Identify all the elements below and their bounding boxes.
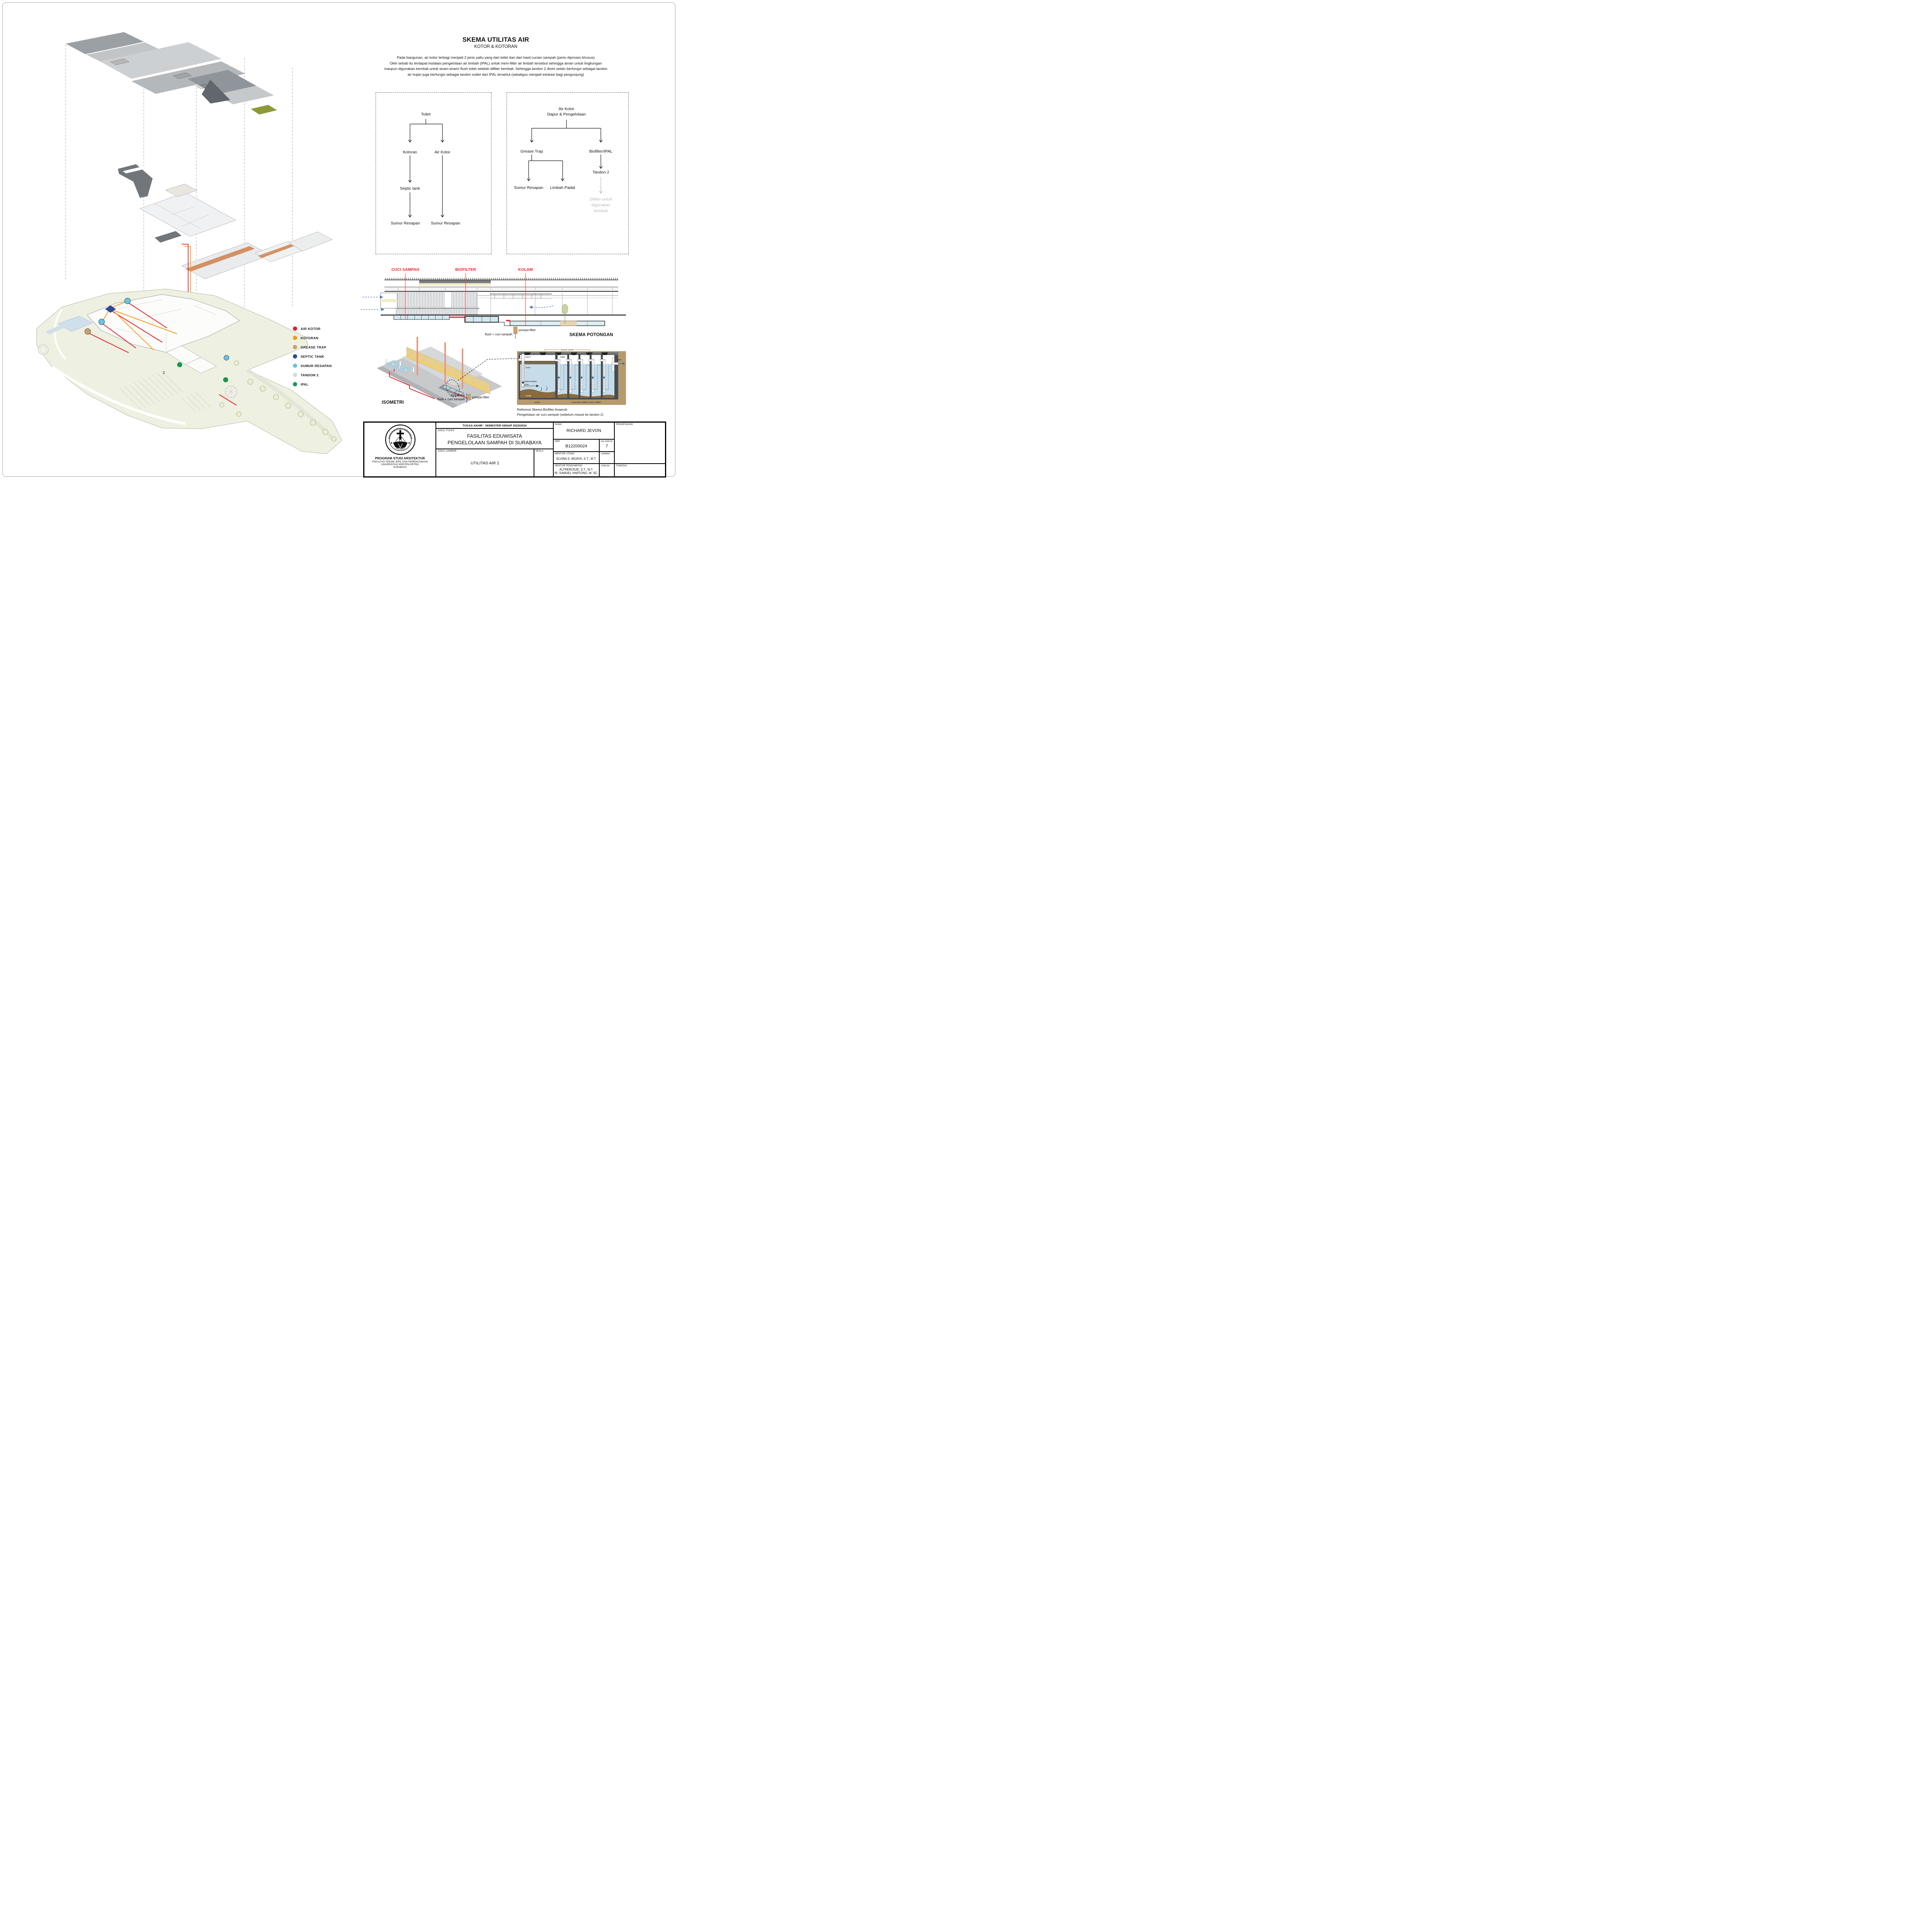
institution-line-3: UNIVERSITAS KRISTEN PETRA: [364, 463, 435, 466]
legend-item: TANDON 2: [293, 373, 332, 377]
sumur-resapan-dot-icon: [293, 364, 297, 368]
ipal-marker: [223, 377, 228, 382]
mentor-utama-value: ELVINA S. WIJAYA, S.T., M.T.: [554, 457, 599, 461]
paragraph-line: maupun digunakan kembali untuk siram-sir…: [361, 66, 631, 72]
flow-note-difilter: Difilter untuk: [590, 197, 612, 202]
flow-node-sumur-resapan: Sumur Resapan: [431, 221, 460, 226]
section-label-cuci-sampah: CUCI SAMPAH: [391, 268, 419, 272]
isometri-note-2: flush + cuci sampah: [437, 398, 465, 401]
pengesahan-cell: PENGESAHAN: [614, 422, 665, 464]
inlet-label: inlet-T: [526, 356, 531, 359]
institution-cell: UNIVERSITAS KRISTEN PETRA PROGRAM STUDI …: [364, 422, 436, 477]
jumlah-label: JUMLAH: [601, 465, 610, 467]
mentor-pendamping-label: MENTOR PENDAMPING: [555, 465, 582, 467]
presentation-sheet: 2: [0, 0, 678, 479]
nama-value: RICHARD JEVON: [554, 428, 614, 433]
flow-note-difilter-3: kembali: [594, 209, 608, 213]
judul-tugas-line-2: PENGELOLAAN SAMPAH DI SURABAYA: [436, 440, 553, 445]
abr-label: anaerobic baffled reactor (ABR): [571, 401, 601, 404]
legend-label: IPAL: [301, 382, 309, 386]
section-scheme-drawing: [361, 273, 626, 339]
isometri-note-1: bisa untuk: [451, 394, 465, 397]
section-label-biofilter: BIOFILTER: [455, 268, 476, 272]
skala-cell: SKALA: [534, 449, 553, 477]
tandon-2-dot-icon: [293, 373, 297, 377]
biofilter-reference-diagram: access covers inlet-T baffle scum sedime…: [517, 349, 626, 405]
sedimentation-label-1: sedimentation: [524, 381, 537, 383]
flowchart-toilet-box: Toilet Kotoran Air Kotor Septic tank Sum…: [376, 92, 492, 254]
flow-node-limbah-padat: Limbah Padat: [550, 185, 575, 190]
titleblock-header: TUGAS AKHIR - SEMESTER GENAP 2023/2024: [436, 424, 553, 427]
flow-node-air-kotor-dapur: Air Kotor: [559, 107, 575, 111]
titleblock-header-cell: TUGAS AKHIR - SEMESTER GENAP 2023/2024: [436, 422, 553, 428]
scum-label: scum: [526, 367, 530, 369]
sumur-resapan-marker: [99, 319, 105, 325]
plaza-circle: [38, 345, 48, 355]
kotoran-dot-icon: [293, 336, 297, 340]
utility-legend: AIR KOTOR KOTORAN GREASE TRAP SEPTIC TAN…: [293, 326, 332, 386]
biofilter-caption-2: Pengelolaan air cuci sampah (sebelum mas…: [517, 413, 604, 416]
flow-node-air-kotor: Air Kotor: [435, 150, 451, 155]
page-title: SKEMA UTILITAS AIR: [361, 36, 631, 44]
biofilter-caption-1: Referensi Skema Biofilter Anaerob: [517, 408, 567, 411]
legend-label: GREASE TRAP: [301, 345, 326, 349]
paragraph-line: Oleh sebab itu terdapat instalasi pengel…: [361, 61, 631, 66]
mentor-utama-cell: MENTOR UTAMA ELVINA S. WIJAYA, S.T., M.T…: [553, 452, 599, 464]
ipal-dot-icon: [293, 382, 297, 386]
paragraph-line: Pada bangunan, air kotor terbagi menjadi…: [361, 55, 631, 61]
page-subtitle: KOTOR & KOTORAN: [361, 44, 631, 49]
green-roof-patch: [251, 105, 277, 114]
scheme-heading: SKEMA UTILITAS AIR KOTOR & KOTORAN Pada …: [361, 36, 631, 77]
mentor-pendamping-2: IR. SAMUEL HARTONO, M. SC.: [554, 471, 599, 475]
isometri-pompa-label: pompa+filter: [472, 396, 489, 399]
section-scheme-title: SKEMA POTONGAN: [569, 333, 613, 337]
section-pompa-label: pompa+filter: [519, 328, 536, 332]
petra-university-logo: UNIVERSITAS KRISTEN PETRA: [385, 424, 416, 455]
judul-tugas-line-1: FASILITAS EDUWISATA: [436, 433, 553, 439]
access-covers-label: access covers: [561, 349, 574, 351]
tandon-marker: [224, 355, 229, 360]
nrp-value: B12200024: [554, 444, 599, 449]
legend-item: IPAL: [293, 382, 332, 386]
flowchart-toilet-arrows: [376, 93, 491, 254]
flow-node-tandon-2: Tandon 2: [592, 170, 609, 175]
tandon-2-mark: 2: [163, 371, 165, 375]
jumlah-cell: JUMLAH: [599, 464, 614, 477]
tanggal-label: TANGGAL: [616, 465, 628, 467]
floorplate-isometric-drawing: [118, 164, 332, 279]
judul-tugas-label: JUDUL TUGAS: [437, 430, 454, 432]
flow-node-air-kotor-dapur-2: Dapur & Pengelolaan: [547, 112, 586, 117]
paragraph-line: air hujan juga berfungsi sebagai tandon …: [361, 72, 631, 78]
flow-node-grease-trap: Grease Trap: [520, 149, 543, 154]
legend-label: AIR KOTOR: [301, 327, 321, 331]
tanggal-cell: TANGGAL: [614, 464, 665, 477]
legend-label: SUMUR RESAPAN: [301, 364, 332, 368]
flow-node-toilet: Toilet: [421, 112, 431, 117]
ipal-marker: [177, 362, 182, 367]
judul-gambar-label: JUDUL GAMBAR: [437, 450, 456, 452]
grease-trap-dot-icon: [293, 345, 297, 349]
kelompok-label: KELOMPOK: [601, 440, 613, 443]
description-paragraph: Pada bangunan, air kotor terbagi menjadi…: [361, 55, 631, 77]
judul-gambar-value: UTILITAS AIR 2: [436, 461, 534, 466]
outlet-label: outlet: [617, 359, 622, 361]
judul-tugas-cell: JUDUL TUGAS FASILITAS EDUWISATA PENGELOL…: [436, 428, 553, 449]
legend-label: TANDON 2: [301, 373, 319, 377]
sludge-label: sludge: [526, 395, 531, 397]
settler-label: settler: [534, 401, 540, 404]
title-block: UNIVERSITAS KRISTEN PETRA PROGRAM STUDI …: [363, 421, 666, 478]
mentor-pendamping-cell: MENTOR PENDAMPING ALTREROSJE, S.T., M.T.…: [553, 464, 599, 477]
mentor-pendamping-1: ALTREROSJE, S.T., M.T.: [554, 468, 599, 471]
roof-isometric-drawing: [66, 32, 277, 114]
flow-node-biofilter-ipal: Biofilter/IPAL: [589, 149, 612, 154]
nama-label: NAMA: [555, 423, 562, 426]
flow-node-sumur-resapan: Sumur Resapan: [514, 185, 543, 190]
flow-node-sumur-resapan: Sumur Resapan: [391, 221, 420, 226]
air-kotor-dot-icon: [293, 326, 297, 331]
grease-trap-marker: [85, 329, 91, 335]
flow-node-septic-tank: Septic tank: [400, 186, 420, 191]
legend-item: GREASE TRAP: [293, 345, 332, 349]
flowchart-dapur-arrows: [507, 93, 628, 254]
isometri-title: ISOMETRI: [382, 400, 404, 405]
flow-node-kotoran: Kotoran: [403, 150, 417, 155]
institution-line-2: FAKULTAS TEKNIK SIPIL DAN PERENCANAAN: [364, 461, 435, 463]
institution-line-1: PROGRAM STUDI ARSITEKTUR: [364, 456, 435, 460]
legend-item: AIR KOTOR: [293, 326, 332, 331]
legend-label: SEPTIC TANK: [301, 355, 324, 359]
legend-item: SEPTIC TANK: [293, 354, 332, 359]
flowchart-dapur-box: Air Kotor Dapur & Pengelolaan Grease Tra…: [507, 92, 629, 254]
pengesahan-label: PENGESAHAN: [616, 423, 633, 426]
kelompok-cell: KELOMPOK 7: [599, 439, 614, 452]
sedimentation-label-2: zone: [524, 384, 529, 386]
pompa-filter-box: [514, 327, 517, 334]
section-flush-label: flush + cuci sampah: [485, 333, 512, 336]
skala-label: SKALA: [536, 450, 543, 452]
institution-line-4: SURABAYA: [364, 466, 435, 469]
nama-cell: NAMA RICHARD JEVON: [553, 422, 614, 439]
nrp-cell: NRP B12200024: [553, 439, 599, 452]
sumur-resapan-marker: [125, 298, 131, 304]
section-label-kolam: KOLAM: [518, 268, 533, 272]
flow-note-difilter-2: digunakan: [592, 203, 610, 207]
lembar-cell: LEMBAR: [599, 452, 614, 464]
mentor-utama-label: MENTOR UTAMA: [555, 453, 575, 455]
nrp-label: NRP: [555, 440, 560, 443]
legend-item: KOTORAN: [293, 336, 332, 340]
judul-gambar-cell: JUDUL GAMBAR UTILITAS AIR 2: [436, 449, 534, 477]
kelompok-value: 7: [600, 444, 614, 449]
legend-item: SUMUR RESAPAN: [293, 364, 332, 368]
septic-tank-dot-icon: [293, 354, 297, 359]
legend-label: KOTORAN: [301, 336, 318, 340]
lembar-label: LEMBAR: [601, 453, 610, 455]
baffle-label: baffle: [560, 356, 565, 359]
